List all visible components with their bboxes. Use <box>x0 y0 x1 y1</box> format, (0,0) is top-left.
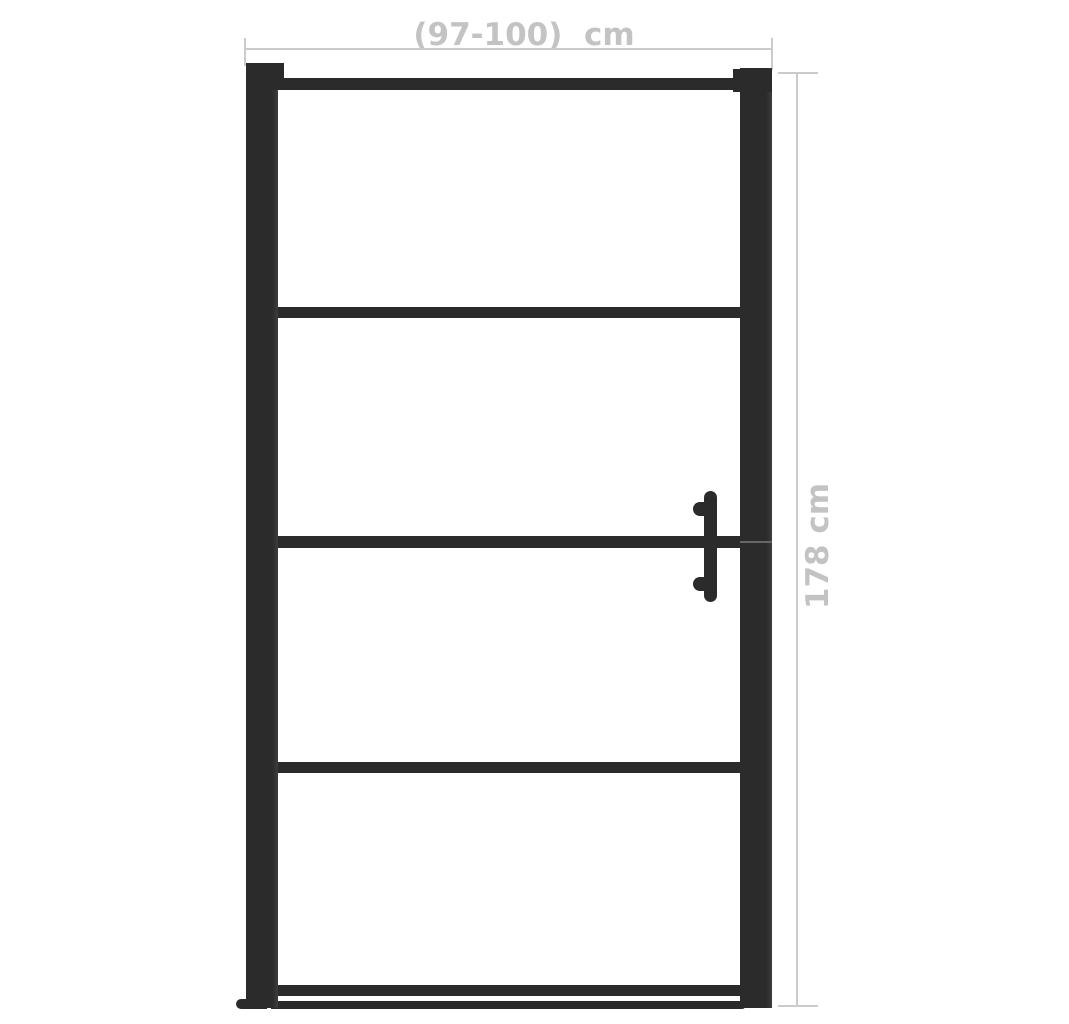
height-dimension-tick-bottom <box>778 1005 818 1007</box>
door-rail-2 <box>270 307 746 318</box>
door-rail-4 <box>270 762 746 773</box>
door-bottom-rail <box>270 985 746 996</box>
width-dimension-tick-right <box>771 38 773 70</box>
height-dimension-label: 178 cm <box>801 483 835 609</box>
width-dimension-line <box>244 48 773 50</box>
width-dimension-tick-left <box>244 38 246 66</box>
door-left-post-cap <box>246 63 284 90</box>
door-right-post <box>740 68 772 1008</box>
door-left-post <box>246 63 278 1008</box>
diagram-canvas: (97-100) cm 178 cm <box>0 0 1069 1024</box>
width-dimension-label: (97-100) cm <box>413 18 634 52</box>
door-top-rail <box>270 78 746 90</box>
door-handle-mount-bottom <box>693 577 711 591</box>
door-handle-mount-top <box>693 502 711 516</box>
door-right-post-cap <box>733 69 772 92</box>
height-dimension-tick-top <box>778 72 818 74</box>
door-post-seam <box>740 541 772 543</box>
door-middle-rail <box>270 536 746 548</box>
door-threshold-strip <box>271 1001 746 1009</box>
height-dimension-line <box>796 73 798 1007</box>
